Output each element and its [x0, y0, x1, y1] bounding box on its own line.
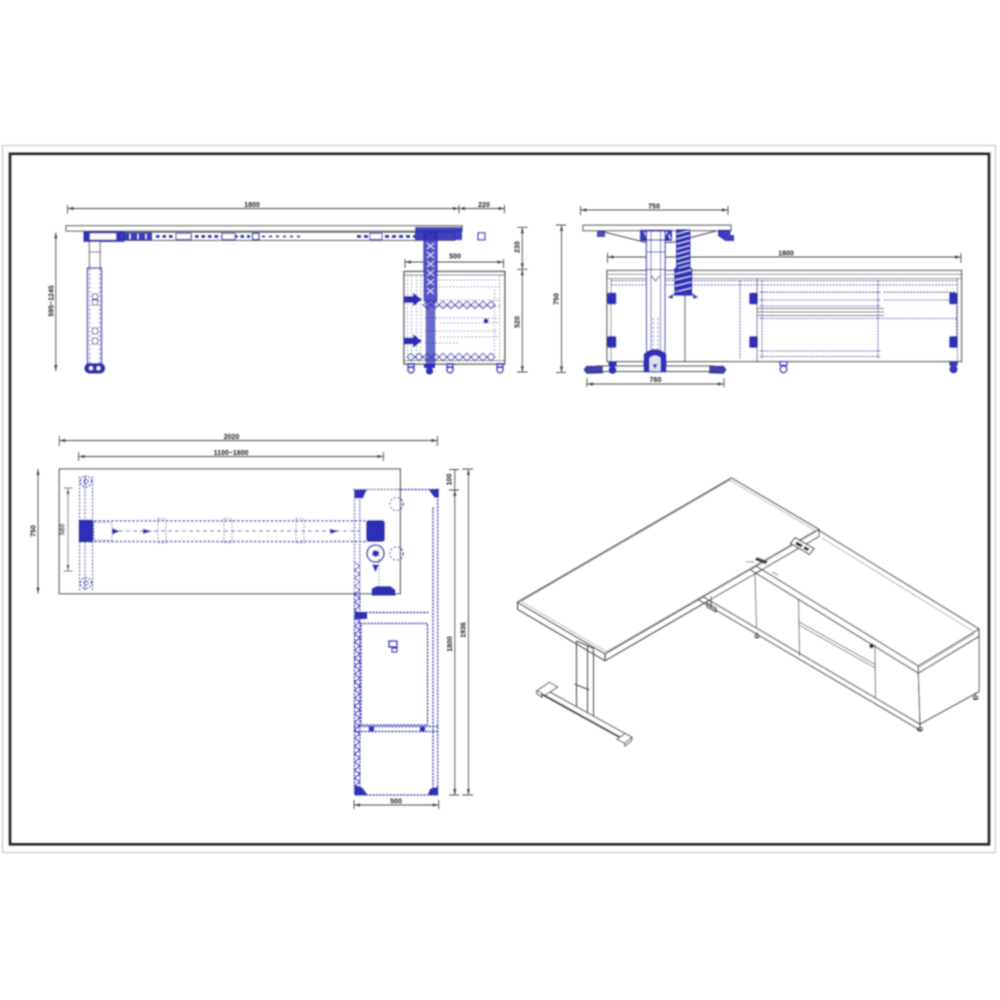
svg-text:1100~1800: 1100~1800 [214, 450, 249, 457]
svg-text:1800: 1800 [244, 202, 260, 209]
svg-text:500: 500 [449, 254, 461, 261]
svg-text:750: 750 [31, 525, 38, 537]
svg-text:2020: 2020 [224, 434, 240, 441]
svg-text:1800: 1800 [447, 636, 454, 652]
svg-text:220: 220 [478, 202, 490, 209]
svg-text:500: 500 [390, 799, 402, 806]
svg-text:750: 750 [648, 204, 660, 211]
svg-text:1800: 1800 [778, 251, 794, 258]
svg-text:100: 100 [447, 474, 454, 486]
svg-text:595~1245: 595~1245 [49, 285, 56, 316]
svg-text:780: 780 [650, 377, 662, 384]
svg-text:580: 580 [60, 524, 67, 536]
svg-text:1936: 1936 [461, 622, 468, 638]
svg-text:230: 230 [515, 241, 522, 253]
svg-text:520: 520 [515, 316, 522, 328]
svg-text:750: 750 [554, 293, 561, 305]
